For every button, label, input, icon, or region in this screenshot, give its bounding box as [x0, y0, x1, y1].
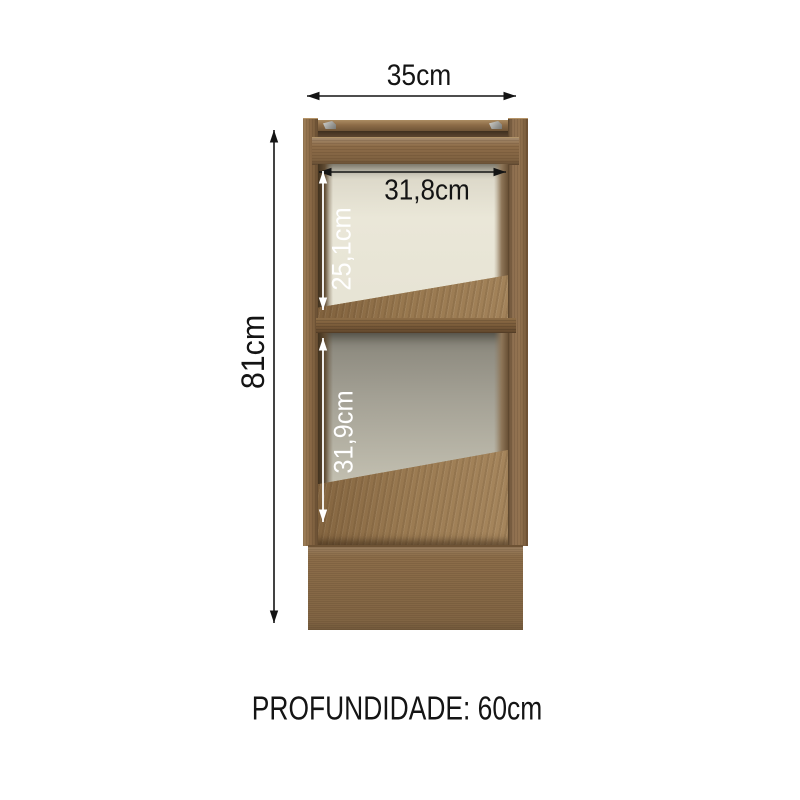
cabinet-top-back-edge: [318, 120, 508, 131]
shelf-front-edge: [316, 318, 516, 333]
width-dimension-label: 35cm: [387, 61, 452, 91]
inner-width-dimension-label: 31,8cm: [384, 177, 470, 206]
depth-label: PROFUNDIDADE: 60cm: [252, 692, 542, 725]
product-dimension-diagram: 35cm 81cm 31,8cm 25,1cm 31,9cm PROFUNDID…: [0, 0, 800, 800]
cabinet-top-rail: [312, 137, 519, 165]
cabinet-base-plinth: [308, 545, 523, 630]
lower-compartment-height-label: 31,9cm: [331, 390, 358, 473]
height-dimension-label: 81cm: [237, 315, 269, 389]
upper-compartment-height-label: 25,1cm: [329, 207, 356, 290]
